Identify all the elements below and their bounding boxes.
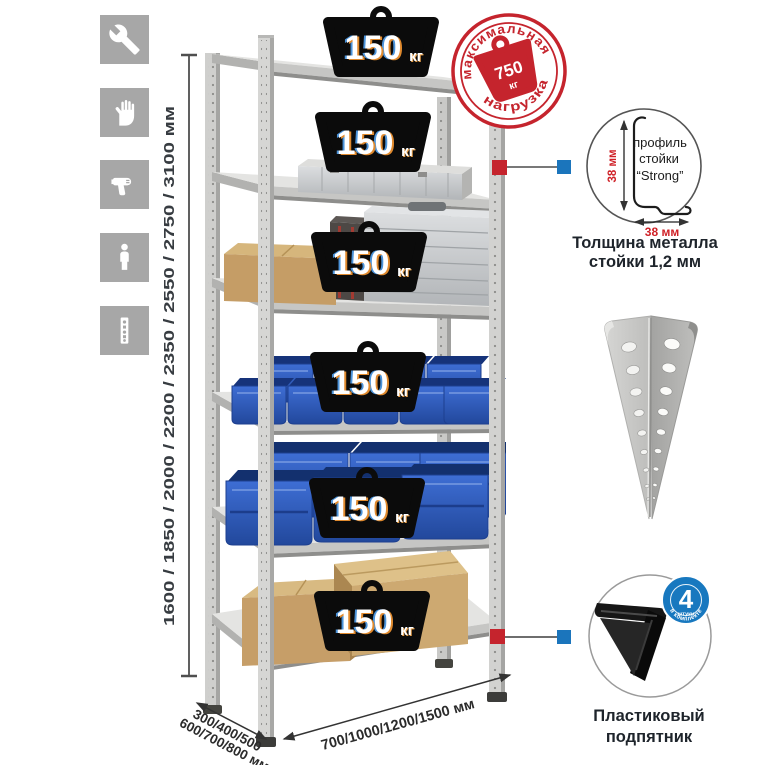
load-unit: кг: [400, 622, 414, 639]
foot-caption-line2: подпятник: [606, 728, 693, 746]
connector-red-square-top: [492, 160, 507, 175]
load-value: 150: [331, 490, 388, 528]
foot-count-badge: 4 штуки в комплекте: [662, 576, 710, 624]
profile-label-line3: “Strong”: [637, 168, 684, 183]
load-badge-2: 150 150 150 кг кг: [320, 104, 426, 167]
rack-illustration: 1600 / 1850 / 2000 / 2200 / 2350 / 2550 …: [0, 0, 765, 765]
load-value: 150: [345, 29, 402, 67]
load-value: 150: [333, 244, 390, 282]
load-value: 150: [332, 364, 389, 402]
connector-red-square-bottom: [490, 629, 505, 644]
product-infographic: 1600 / 1850 / 2000 / 2200 / 2350 / 2550 …: [0, 0, 765, 765]
profile-detail: 38 мм 38 мм профиль стойки “Strong” Толщ…: [572, 109, 718, 271]
profile-label-line1: профиль: [633, 135, 687, 150]
max-load-stamp: 750 кг максимальная нагрузка: [438, 0, 579, 141]
load-badge-3: 150 150 150 кг кг: [316, 224, 422, 287]
profile-label-line2: стойки: [639, 151, 679, 166]
plastic-foot-detail: 4 штуки в комплекте Пластиковый подпятни…: [589, 575, 711, 746]
load-unit: кг: [401, 143, 415, 160]
foot-caption-line1: Пластиковый: [593, 707, 704, 725]
load-value: 150: [337, 124, 394, 162]
foot-callout-connector: [490, 629, 571, 644]
width-dimension: 700/1000/1200/1500 мм: [284, 675, 510, 754]
load-badge-6: 150 150 150 кг кг: [319, 583, 425, 646]
connector-blue-square-top: [557, 160, 571, 174]
height-dimension-label: 1600 / 1850 / 2000 / 2200 / 2350 / 2550 …: [161, 106, 178, 626]
load-badge-4: 150 150 150 кг кг: [315, 344, 421, 407]
profile-callout-connector: [492, 160, 571, 175]
load-badge-1: 150 150 150 кг кг: [328, 9, 434, 72]
profile-caption-line2: стойки 1,2 мм: [589, 253, 701, 271]
profile-caption-line1: Толщина металла: [572, 234, 718, 252]
load-unit: кг: [396, 383, 410, 400]
profile-dim-vertical: 38 мм: [607, 149, 619, 182]
connector-blue-square-bottom: [557, 630, 571, 644]
load-unit: кг: [409, 48, 423, 65]
height-dimension: 1600 / 1850 / 2000 / 2200 / 2350 / 2550 …: [161, 55, 197, 676]
load-badge-5: 150 150 150 кг кг: [314, 470, 420, 533]
load-unit: кг: [397, 263, 411, 280]
width-dimension-label: 700/1000/1200/1500 мм: [319, 696, 476, 754]
load-value: 150: [336, 603, 393, 641]
load-unit: кг: [395, 509, 409, 526]
badge-value: 4: [679, 584, 694, 614]
angle-post-picture: [605, 316, 698, 519]
